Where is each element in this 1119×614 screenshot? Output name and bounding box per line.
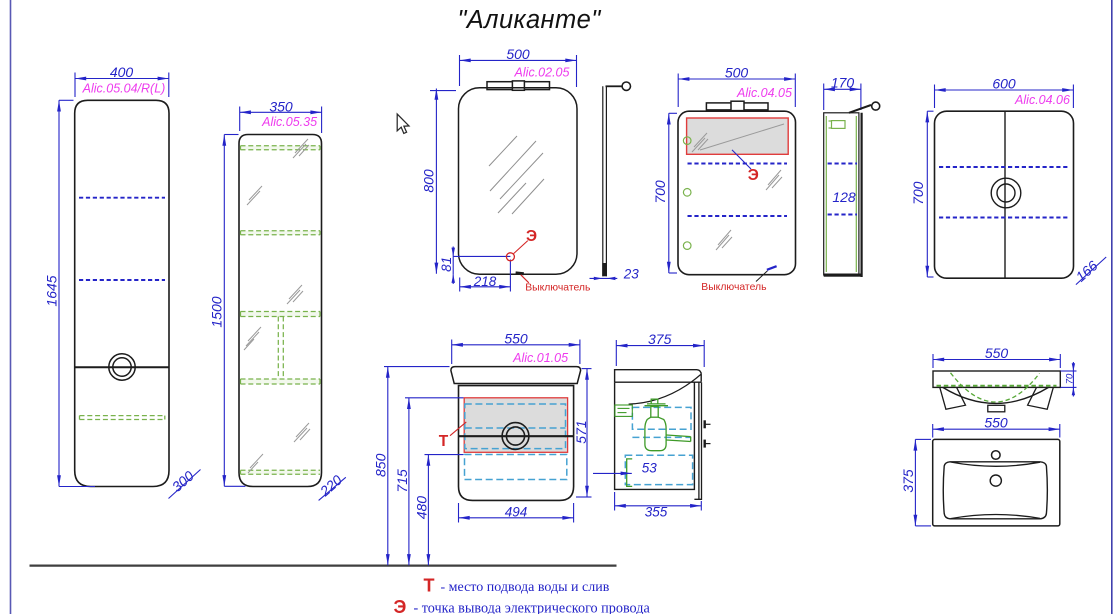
svg-text:Э: Э (748, 167, 759, 184)
svg-text:"Аликанте": "Аликанте" (457, 6, 601, 34)
svg-text:70: 70 (1064, 373, 1075, 384)
svg-text:550: 550 (504, 330, 528, 346)
svg-text:550: 550 (985, 345, 1009, 361)
svg-text:480: 480 (414, 496, 430, 520)
svg-text:850: 850 (373, 453, 389, 477)
svg-text:700: 700 (652, 180, 668, 204)
svg-text:600: 600 (992, 75, 1016, 91)
svg-text:170: 170 (831, 75, 855, 91)
svg-text:Alic.01.05: Alic.01.05 (512, 351, 568, 365)
svg-text:1645: 1645 (43, 275, 59, 306)
svg-text:- место подвода воды и слив: - место подвода воды и слив (441, 580, 610, 595)
svg-text:Э: Э (394, 597, 407, 614)
svg-text:23: 23 (623, 266, 640, 281)
svg-text:800: 800 (420, 169, 436, 193)
svg-text:Выключатель: Выключатель (525, 282, 590, 293)
svg-text:Alic.05.04/R(L): Alic.05.04/R(L) (82, 82, 166, 96)
svg-text:375: 375 (648, 331, 672, 347)
svg-text:494: 494 (505, 505, 528, 520)
svg-text:571: 571 (573, 420, 589, 443)
svg-text:128: 128 (832, 189, 856, 205)
svg-text:355: 355 (645, 504, 668, 519)
svg-text:53: 53 (642, 461, 658, 476)
svg-text:Alic.04.06: Alic.04.06 (1014, 93, 1070, 107)
svg-text:500: 500 (506, 46, 530, 62)
svg-text:400: 400 (110, 64, 134, 80)
svg-text:350: 350 (269, 99, 293, 115)
svg-text:500: 500 (725, 64, 749, 80)
svg-text:Alic.04.05: Alic.04.05 (736, 86, 792, 100)
svg-text:- точка вывода электрического: - точка вывода электрического провода (414, 601, 651, 614)
svg-text:1500: 1500 (209, 296, 225, 327)
svg-text:Alic.05.35: Alic.05.35 (261, 115, 317, 129)
svg-text:Alic.02.05: Alic.02.05 (514, 66, 570, 80)
svg-text:715: 715 (394, 469, 410, 493)
svg-text:Выключатель: Выключатель (701, 282, 766, 293)
svg-text:700: 700 (910, 181, 926, 205)
svg-text:Э: Э (526, 228, 537, 245)
svg-text:550: 550 (984, 415, 1008, 431)
svg-text:375: 375 (900, 469, 916, 493)
svg-text:Т: Т (439, 433, 449, 450)
svg-text:81: 81 (439, 257, 454, 272)
svg-text:218: 218 (473, 274, 497, 289)
svg-text:Т: Т (424, 576, 435, 596)
